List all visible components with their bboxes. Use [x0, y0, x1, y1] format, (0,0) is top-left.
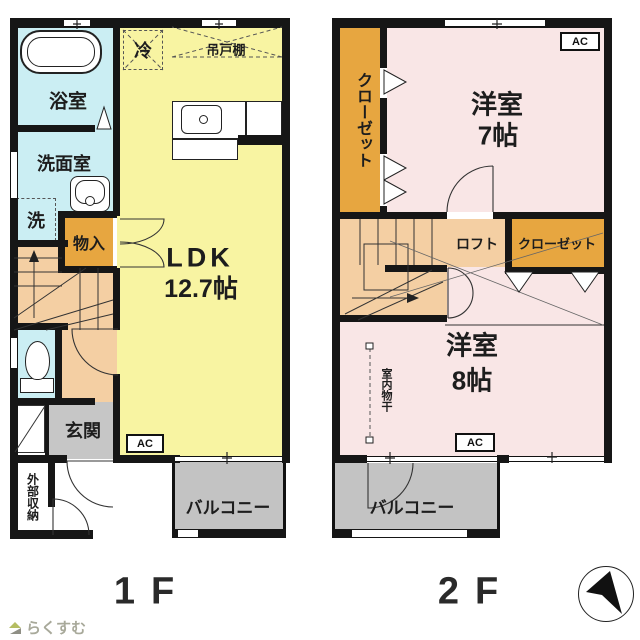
wall: [58, 211, 117, 218]
wall: [113, 28, 120, 216]
wall: [58, 266, 117, 273]
wall: [332, 212, 447, 219]
wall: [10, 323, 68, 330]
label-west8-size: 8帖: [452, 361, 492, 398]
label-fridge: 冷: [134, 37, 152, 63]
label-ldk-size: 12.7帖: [164, 269, 238, 305]
ac-box-2f-bottom: AC: [455, 433, 495, 452]
wall: [332, 455, 367, 463]
wall: [385, 265, 447, 272]
window-bath: [64, 19, 90, 27]
wall: [10, 398, 95, 405]
label-storage: 物入: [73, 230, 105, 254]
house-icon: [8, 621, 22, 635]
wall: [48, 459, 55, 507]
label-loft: ロフト: [456, 234, 498, 254]
site-logo: らくすむ: [8, 617, 86, 638]
wall: [505, 267, 604, 274]
label-cupboard: 吊戸棚: [206, 40, 245, 59]
closet-door-gap: [380, 154, 387, 206]
label-entrance: 玄関: [65, 417, 101, 443]
window-washroom: [10, 152, 18, 198]
wall: [493, 212, 604, 219]
wall: [10, 125, 95, 132]
shoe-cabinet: [14, 405, 45, 453]
label-balcony-1f: バルコニー: [186, 494, 271, 519]
wall: [505, 219, 512, 267]
wall: [10, 463, 18, 537]
wall: [45, 402, 49, 455]
toilet-tank: [20, 378, 54, 393]
label-west7-size: 7帖: [478, 116, 518, 153]
closet-door-gap: [380, 68, 387, 98]
wall: [58, 211, 65, 273]
floorplan-canvas: AC AC AC: [0, 0, 640, 640]
room-west8-upper-a: [447, 267, 512, 325]
kitchen-divider: [245, 101, 247, 139]
compass-needle-icon: [579, 567, 632, 620]
room-ldk: [117, 24, 282, 459]
ac-box-1f: AC: [126, 434, 164, 453]
wall: [113, 455, 180, 463]
wall: [332, 315, 447, 322]
label-closet-right: クローゼット: [518, 234, 596, 253]
toilet-bowl: [25, 341, 50, 380]
window-west8-bottom: [509, 456, 604, 462]
kitchen-wall-stub: [238, 135, 282, 145]
bathtub-inner: [27, 37, 95, 67]
room-stairs-1f-a: [14, 245, 62, 330]
balcony-1f-gap: [178, 530, 198, 537]
ac-label: AC: [467, 437, 483, 449]
washbasin-drain: [85, 196, 95, 206]
wall: [113, 374, 120, 459]
label-indoor-drying: 室内物干: [378, 368, 394, 412]
wall: [10, 455, 67, 463]
label-west8-name: 洋室: [446, 326, 498, 363]
door-entrance: [67, 461, 113, 507]
room-hall-1f: [62, 330, 117, 405]
wall: [282, 18, 290, 463]
kitchen-counter-lower: [172, 139, 238, 160]
wall: [10, 530, 93, 539]
wall: [604, 18, 612, 463]
wall: [55, 330, 62, 402]
wall: [332, 18, 340, 463]
sliding-door-west8-balcony: [367, 456, 497, 462]
wall: [497, 455, 509, 463]
sliding-door-ldk-balcony: [175, 456, 282, 462]
wall: [10, 18, 290, 28]
window-toilet: [10, 338, 18, 368]
label-outer-storage: 外部収納: [25, 473, 42, 521]
label-balcony-2f: バルコニー: [370, 494, 455, 519]
window-west7-top: [445, 19, 545, 27]
label-bath: 浴室: [49, 87, 87, 114]
kitchen-sink-drain: [199, 115, 208, 124]
label-laundry: 洗: [27, 207, 45, 233]
balcony-2f-gap: [352, 530, 467, 537]
ac-label: AC: [572, 36, 588, 48]
logo-text: らくすむ: [26, 617, 86, 638]
label-closet-left: クローゼット: [350, 72, 374, 168]
window-ldk-top: [202, 19, 236, 27]
floor-label-1f: 1F: [114, 571, 190, 614]
label-washroom: 洗面室: [37, 150, 91, 176]
floor-label-2f: 2F: [438, 571, 514, 614]
wall: [113, 268, 120, 330]
ac-label: AC: [137, 438, 153, 450]
compass: [578, 566, 634, 622]
ac-box-2f-top: AC: [560, 32, 600, 51]
room-west8-upper-b: [512, 274, 604, 325]
room-stairs-1f-b: [62, 268, 117, 330]
